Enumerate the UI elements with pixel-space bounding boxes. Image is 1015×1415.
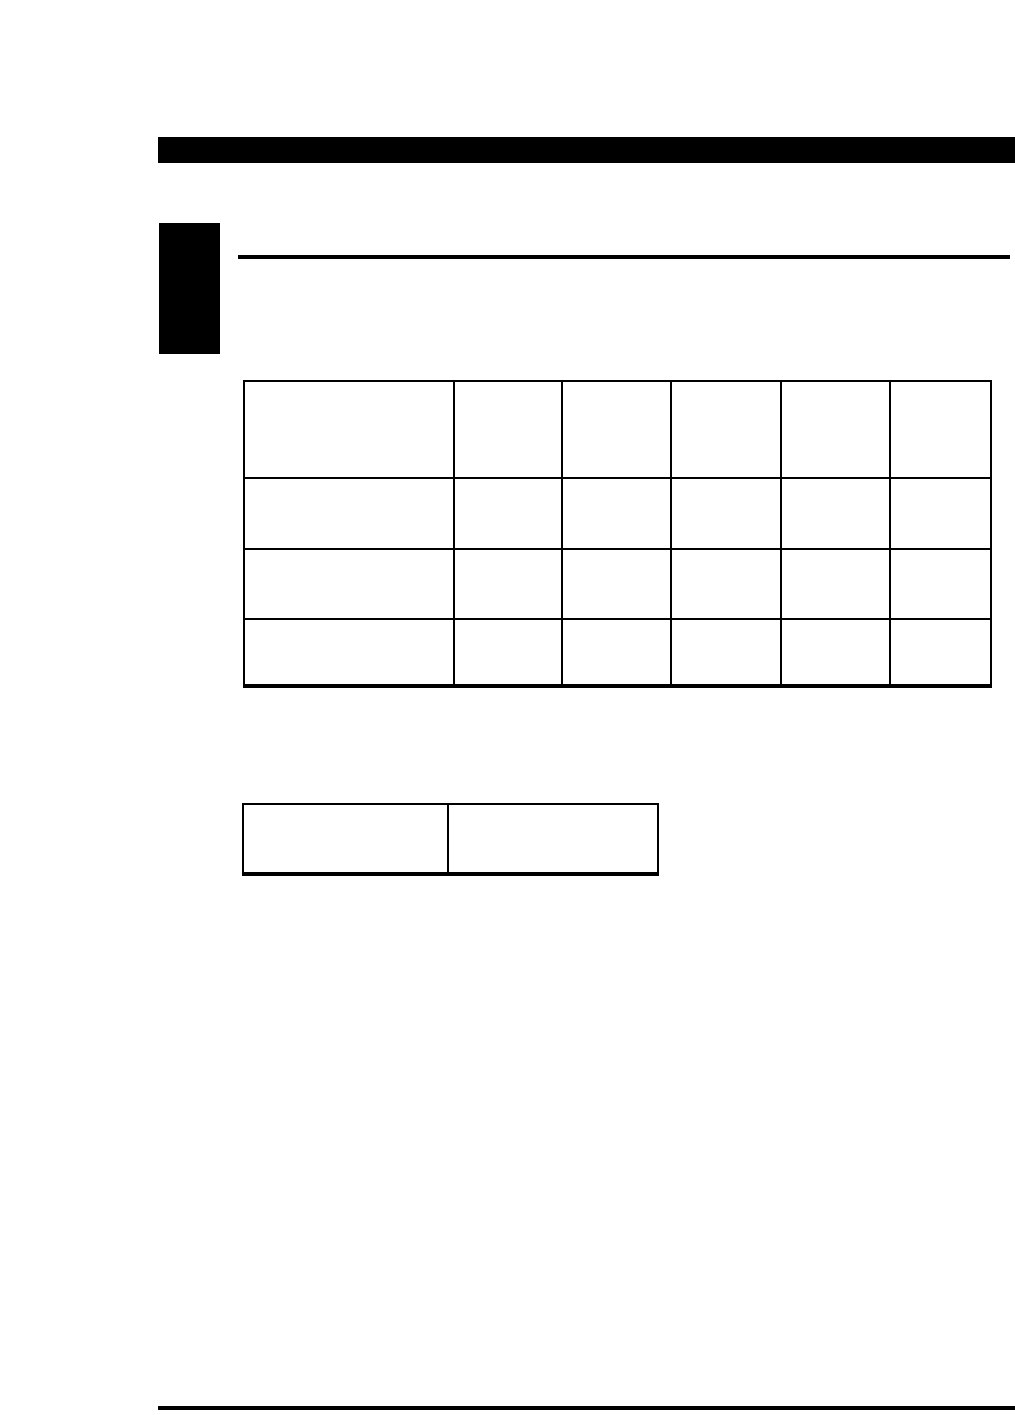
table-cell bbox=[454, 478, 562, 549]
table-cell bbox=[890, 478, 991, 549]
table-cell bbox=[244, 549, 454, 619]
table-cell bbox=[244, 478, 454, 549]
table-cell bbox=[244, 619, 454, 685]
table-cell bbox=[671, 478, 781, 549]
chapter-tab-marker bbox=[159, 223, 220, 354]
table-cell bbox=[454, 549, 562, 619]
table-cell bbox=[671, 685, 781, 687]
table-row bbox=[243, 804, 658, 873]
table-cell bbox=[562, 381, 671, 478]
table-cell bbox=[562, 619, 671, 685]
footer-rule-divider bbox=[158, 1406, 1015, 1410]
table-cell bbox=[562, 549, 671, 619]
table-cell bbox=[562, 478, 671, 549]
table-cell bbox=[562, 685, 671, 687]
table-row bbox=[244, 685, 991, 687]
table-cell bbox=[781, 619, 890, 685]
table-row bbox=[244, 619, 991, 685]
table-cell bbox=[781, 685, 890, 687]
header-bar bbox=[158, 137, 1015, 163]
heading-rule-divider bbox=[238, 255, 1010, 259]
secondary-table bbox=[242, 803, 659, 876]
table-cell bbox=[243, 873, 448, 875]
table-cell bbox=[890, 619, 991, 685]
table-cell bbox=[454, 685, 562, 687]
table-row bbox=[244, 549, 991, 619]
table-cell bbox=[243, 804, 448, 873]
table-cell bbox=[454, 381, 562, 478]
table-row bbox=[244, 478, 991, 549]
main-table bbox=[243, 380, 992, 688]
table-cell bbox=[244, 685, 454, 687]
table-cell bbox=[781, 549, 890, 619]
table-cell bbox=[890, 685, 991, 687]
table-cell bbox=[454, 619, 562, 685]
table-cell bbox=[890, 381, 991, 478]
table-cell bbox=[671, 619, 781, 685]
table-cell bbox=[671, 381, 781, 478]
table-cell bbox=[781, 478, 890, 549]
table-cell bbox=[448, 804, 658, 873]
table-cell bbox=[448, 873, 658, 875]
table-row bbox=[244, 381, 991, 478]
table-cell bbox=[890, 549, 991, 619]
table-row bbox=[243, 873, 658, 875]
table-cell bbox=[244, 381, 454, 478]
table-cell bbox=[671, 549, 781, 619]
table-cell bbox=[781, 381, 890, 478]
document-page bbox=[0, 0, 1015, 1415]
